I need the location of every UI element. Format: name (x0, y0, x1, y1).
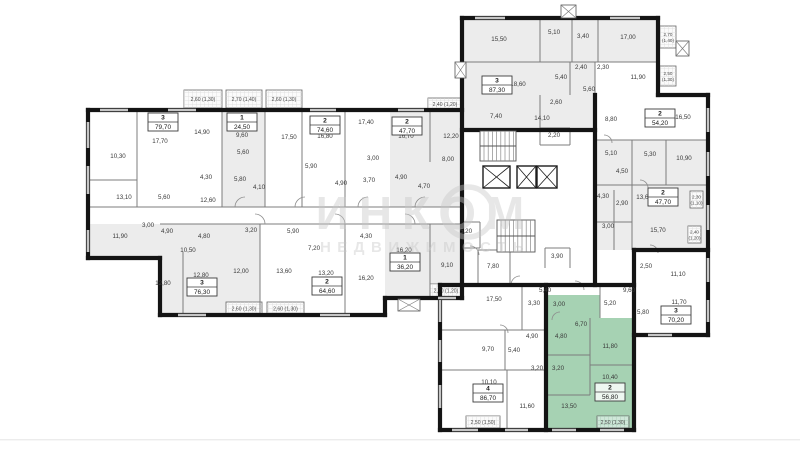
apartment-rooms-count: 2 (325, 279, 329, 286)
balcony-label: 2,70 (664, 32, 673, 37)
room-area-label: 4,30 (200, 174, 213, 181)
room-area-label: 7,80 (487, 263, 500, 270)
room-area-label: 13,10 (116, 194, 132, 201)
apartment-area: 47,70 (399, 128, 415, 135)
apartment-unit-apt-64-60[interactable]: 264,60 (312, 277, 342, 295)
apartment-unit-apt-70-20[interactable]: 370,20 (661, 306, 691, 324)
balcony: 2,60 (1,30) (266, 90, 302, 108)
room-area-label: 10,90 (676, 155, 692, 162)
room-area-label: 9,70 (482, 346, 495, 353)
elevator-shaft (517, 166, 536, 188)
watermark-subtitle-text: НЕДВИЖИМОСТЬ (320, 239, 530, 256)
apartment-unit-apt-86-70[interactable]: 486,70 (473, 384, 503, 402)
room-area-label: 12,60 (200, 197, 216, 204)
room-area-label: 11,80 (602, 343, 618, 350)
room-area-label: 3,00 (553, 301, 566, 308)
apartment-area: 86,70 (480, 395, 496, 402)
room-area-label: 4,90 (526, 333, 539, 340)
room-area-label: 12,00 (233, 268, 249, 275)
room-area-label: 2,20 (548, 132, 561, 139)
room-area-label: 5,80 (637, 309, 650, 316)
room-area-label: 14,90 (194, 129, 210, 136)
watermark-brand-text: ИНКОМ (316, 187, 534, 239)
apartment-unit-apt-74-60[interactable]: 274,60 (310, 116, 340, 134)
apartment-rooms-count: 3 (200, 280, 204, 287)
room-area-label: 16,20 (358, 275, 374, 282)
apartment-unit-apt-79-70[interactable]: 379,70 (148, 113, 178, 131)
room-area-label: 17,70 (152, 138, 168, 145)
room-area-label: 3,30 (528, 300, 541, 307)
door-swing-arc (295, 197, 305, 207)
room-area-label: 7,20 (308, 245, 321, 252)
floorplan-svg: 2,60 (1,30)2,70 (1,40)2,60 (1,30)2,40 (1… (0, 0, 800, 450)
apartment-area: 64,60 (319, 288, 335, 295)
apartment-unit-apt-76-30[interactable]: 376,30 (187, 278, 217, 296)
apartment-area: 36,20 (397, 264, 413, 271)
room-area-label: 11,10 (670, 271, 686, 278)
apartment-rooms-count: 2 (405, 119, 409, 126)
room-area-label: 5,20 (604, 300, 617, 307)
room-area-label: 3,40 (577, 33, 590, 40)
staircase (480, 131, 516, 161)
watermark: ИНКОМНЕДВИЖИМОСТЬ (316, 187, 534, 256)
balcony: 2,60 (1,30) (184, 90, 222, 108)
room-area-label: 13,50 (561, 403, 577, 410)
shaded-apartment-floor (462, 62, 595, 130)
room-area-label: 9,60 (623, 287, 636, 294)
balcony-label: 2,50 (1,30) (601, 420, 626, 426)
room-area-label: 17,50 (486, 296, 502, 303)
balcony-label: 2,60 (1,30) (272, 97, 297, 103)
balcony-label: 2,50 (1,50) (471, 420, 496, 426)
elevator-shaft (483, 166, 510, 188)
apartment-unit-apt-47-70-right[interactable]: 247,70 (648, 188, 678, 206)
room-area-label: 3,70 (363, 177, 376, 184)
room-area-label: 15,70 (650, 227, 666, 234)
room-area-label: 2,30 (597, 64, 610, 71)
balcony: 2,50 (1,50) (466, 416, 500, 428)
balcony-label: 2,60 (1,30) (232, 307, 257, 313)
room-area-label: 11,60 (519, 403, 535, 410)
apartment-area: 79,70 (155, 124, 171, 131)
room-area-label: 17,40 (358, 119, 374, 126)
balcony-label: 2,40 (1,20) (433, 102, 458, 108)
apartment-unit-apt-56-80[interactable]: 256,80 (595, 383, 625, 401)
apartment-unit-apt-54-20[interactable]: 254,20 (645, 109, 675, 127)
room-area-label: 3,90 (551, 253, 564, 260)
room-area-label: 12,80 (155, 280, 171, 287)
room-area-label: 9,60 (236, 132, 249, 139)
balcony-label: 2,40 (690, 230, 699, 235)
room-area-label: 5,40 (539, 287, 552, 294)
room-area-label: 11,90 (630, 74, 646, 81)
balcony: 2,30(1,10) (690, 191, 703, 208)
room-area-label: 10,40 (602, 374, 618, 381)
room-area-label: 5,60 (583, 86, 596, 93)
balcony-label: (1,40) (662, 38, 674, 43)
elevator-shaft (537, 166, 557, 188)
balcony-label: 2,30 (692, 195, 701, 200)
apartment-area: 56,80 (602, 394, 618, 401)
apartment-rooms-count: 3 (161, 115, 165, 122)
room-area-label: 5,60 (158, 194, 171, 201)
room-area-label: 4,90 (335, 180, 348, 187)
apartment-area: 47,70 (655, 199, 671, 206)
room-area-label: 4,90 (395, 174, 408, 181)
room-area-label: 3,20 (531, 365, 544, 372)
room-area-label: 8,80 (605, 116, 618, 123)
floorplan-page: 2,60 (1,30)2,70 (1,40)2,60 (1,30)2,40 (1… (0, 0, 800, 450)
balcony: 2,50 (1,30) (597, 416, 629, 428)
exterior-basket (561, 5, 576, 18)
apartment-rooms-count: 2 (658, 111, 662, 118)
apartment-area: 54,20 (652, 120, 668, 127)
room-area-label: 11,90 (112, 233, 128, 240)
apartment-unit-apt-24-50[interactable]: 124,50 (227, 113, 257, 131)
room-area-label: 3,20 (552, 365, 565, 372)
room-area-label: 14,10 (534, 115, 550, 122)
apartment-rooms-count: 4 (486, 386, 490, 393)
room-area-label: 8,00 (442, 156, 455, 163)
room-area-label: 11,70 (671, 299, 687, 306)
balcony-label: 2,60 (1,30) (273, 307, 298, 313)
room-area-label: 3,20 (245, 227, 258, 234)
apartment-rooms-count: 3 (674, 308, 678, 315)
room-area-label: 17,00 (620, 34, 636, 41)
room-area-label: 15,50 (491, 36, 507, 43)
room-area-label: 16,50 (675, 114, 691, 121)
apartment-rooms-count: 2 (661, 190, 665, 197)
room-area-label: 5,60 (237, 149, 250, 156)
room-area-label: 4,80 (198, 233, 211, 240)
room-area-label: 10,30 (110, 153, 126, 160)
balcony: 2,70(1,40) (660, 26, 676, 48)
door-swing-arc (500, 325, 508, 333)
apartment-rooms-count: 3 (495, 78, 499, 85)
room-area-label: 13,20 (318, 270, 334, 277)
exterior-basket (398, 299, 420, 311)
room-area-label: 17,50 (281, 134, 297, 141)
apartment-unit-apt-47-70-left[interactable]: 247,70 (392, 117, 422, 135)
room-area-label: 7,40 (490, 113, 503, 120)
balcony-label: (1,20) (688, 236, 700, 241)
room-area-label: 4,10 (253, 184, 266, 191)
balcony-label: 2,70 (1,40) (232, 97, 257, 103)
room-area-label: 5,30 (644, 151, 657, 158)
room-area-label: 4,90 (161, 228, 174, 235)
balcony-label: 2,60 (1,30) (191, 97, 216, 103)
room-area-label: 5,10 (605, 150, 618, 157)
room-area-label: 10,50 (180, 247, 196, 254)
room-area-label: 2,90 (616, 200, 629, 207)
door-swing-arc (255, 214, 265, 224)
room-area-label: 13,60 (276, 268, 292, 275)
room-area-label: 5,80 (234, 176, 247, 183)
room-area-label: 3,00 (367, 155, 380, 162)
apartment-area: 70,20 (668, 317, 684, 324)
room-area-label: 5,10 (548, 29, 561, 36)
apartment-unit-apt-87-30[interactable]: 387,30 (482, 76, 512, 94)
room-area-label: 2,50 (640, 263, 653, 270)
room-area-label: 9,10 (441, 262, 454, 269)
apartment-rooms-count: 2 (323, 118, 327, 125)
page-divider-line (0, 439, 800, 440)
apartment-area: 87,30 (489, 87, 505, 94)
apartment-rooms-count: 1 (240, 115, 244, 122)
room-area-label: 4,80 (555, 333, 568, 340)
balcony-label: (1,30) (662, 77, 674, 82)
balcony-label: 2,50 (664, 71, 673, 76)
room-area-label: 2,40 (575, 64, 588, 71)
room-area-label: 4,30 (597, 193, 610, 200)
room-area-label: 5,40 (508, 347, 521, 354)
room-area-label: 4,50 (616, 168, 629, 175)
balcony: 2,70 (1,40) (226, 90, 262, 108)
room-area-label: 5,90 (305, 163, 318, 170)
apartment-area: 24,50 (234, 124, 250, 131)
room-area-label: 3,00 (602, 223, 615, 230)
room-area-label: 5,90 (287, 228, 300, 235)
apartment-rooms-count: 2 (608, 385, 612, 392)
apartment-area: 76,30 (194, 289, 210, 296)
room-area-label: 2,60 (550, 99, 563, 106)
balcony: 2,50(1,30) (660, 66, 676, 86)
room-area-label: 5,40 (555, 74, 568, 81)
exterior-basket (676, 41, 689, 56)
shaded-apartment-floor (88, 224, 160, 258)
balcony: 2,40(1,20) (688, 226, 701, 243)
room-area-label: 6,70 (575, 321, 588, 328)
balcony-label: 2,40 (1,20) (434, 289, 459, 295)
balcony-label: (1,10) (690, 201, 702, 206)
room-area-label: 3,00 (142, 222, 155, 229)
room-area-label: 18,60 (510, 81, 526, 88)
room-area-label: 12,20 (443, 133, 459, 140)
exterior-basket (455, 62, 466, 78)
apartment-area: 74,60 (317, 127, 333, 134)
